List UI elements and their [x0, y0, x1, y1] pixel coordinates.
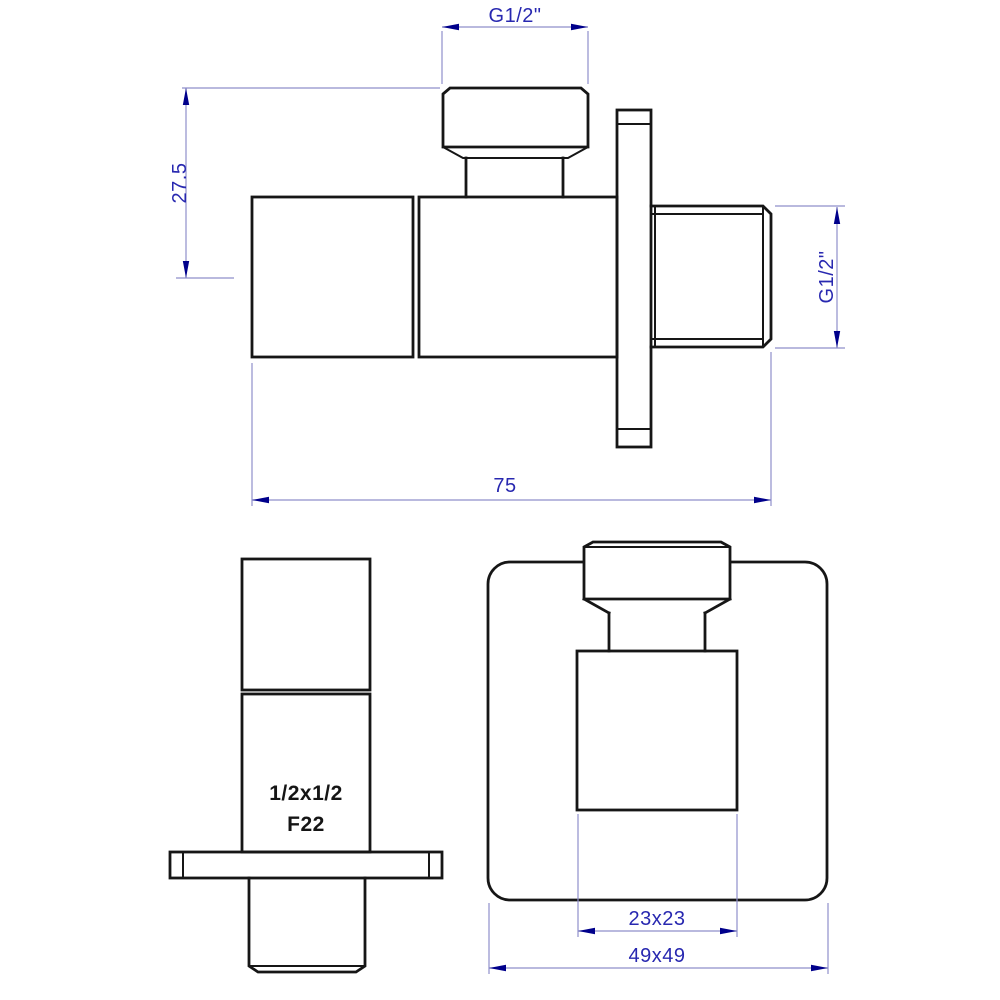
- arrow-up-icon: [183, 88, 189, 105]
- marking-size: 1/2x1/2: [269, 782, 343, 805]
- arrow-down-icon: [183, 261, 189, 278]
- dim-label-length: 75: [493, 475, 516, 497]
- outlet-thread-outline: [651, 206, 771, 347]
- arrow-right-icon: [811, 965, 828, 971]
- arrow-up-icon: [834, 207, 840, 224]
- body-square-front: [577, 651, 737, 810]
- view-front-valve: 1/2x1/2 F22: [170, 559, 442, 972]
- dim-label-height: 27.5: [169, 163, 191, 204]
- handle-front: [242, 559, 370, 690]
- arrow-down-icon: [834, 331, 840, 348]
- marking-model: F22: [287, 813, 325, 836]
- arrow-right-icon: [754, 497, 771, 503]
- head-nut-bottom-chamfer: [443, 147, 588, 158]
- dim-label-top-thread: G1/2": [489, 5, 542, 27]
- view-front-plate: [488, 542, 827, 900]
- arrow-left-icon: [442, 24, 459, 30]
- arrow-left-icon: [489, 965, 506, 971]
- valve-body-side: [419, 197, 617, 357]
- wall-plate-front: [488, 562, 827, 900]
- arrow-left-icon: [252, 497, 269, 503]
- drawing-page: G1/2" 27.5 G1/2" 75 1/2x1/2 F22: [0, 0, 1000, 1000]
- arrow-right-icon: [571, 24, 588, 30]
- drawing-canvas: G1/2" 27.5 G1/2" 75 1/2x1/2 F22: [0, 0, 1000, 1000]
- dims-front-plate: 23x23 49x49: [489, 814, 828, 974]
- wall-plate-side: [617, 110, 651, 447]
- head-nut-front: [584, 542, 730, 599]
- view-side-elevation: [252, 88, 771, 447]
- dim-label-plate-face: 49x49: [629, 945, 686, 967]
- outlet-stub-front: [249, 878, 365, 972]
- nut-taper-left: [584, 599, 609, 613]
- dims-side-elevation: G1/2" 27.5 G1/2" 75: [169, 5, 845, 506]
- arrow-right-icon: [720, 928, 737, 934]
- flange-front: [170, 852, 442, 878]
- dim-label-body-face: 23x23: [629, 908, 686, 930]
- head-nut-side: [443, 88, 588, 147]
- arrow-left-icon: [578, 928, 595, 934]
- nut-taper-right: [705, 599, 730, 613]
- handle-side: [252, 197, 413, 357]
- dim-label-side-thread: G1/2": [816, 251, 838, 304]
